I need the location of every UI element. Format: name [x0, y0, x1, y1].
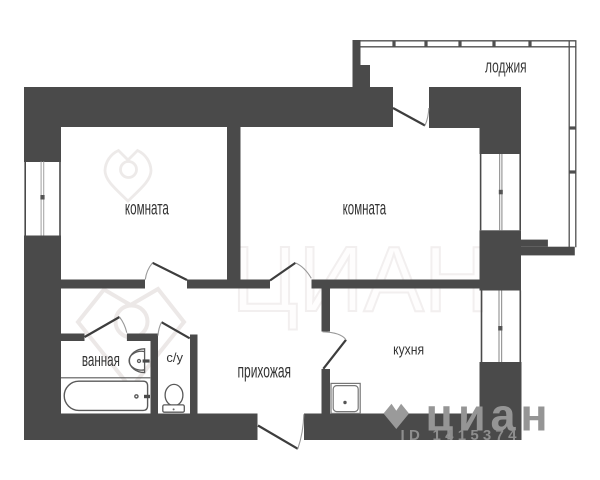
svg-text:ID 1415374: ID 1415374	[401, 427, 518, 444]
svg-text:с/у: с/у	[166, 350, 183, 365]
svg-text:комната: комната	[343, 199, 387, 220]
svg-text:кухня: кухня	[393, 342, 424, 358]
svg-text:ЦИАН: ЦИАН	[232, 227, 490, 331]
svg-text:комната: комната	[125, 199, 169, 220]
svg-text:ванная: ванная	[82, 349, 120, 370]
svg-text:лоджия: лоджия	[485, 57, 527, 77]
svg-text:прихожая: прихожая	[238, 361, 292, 382]
